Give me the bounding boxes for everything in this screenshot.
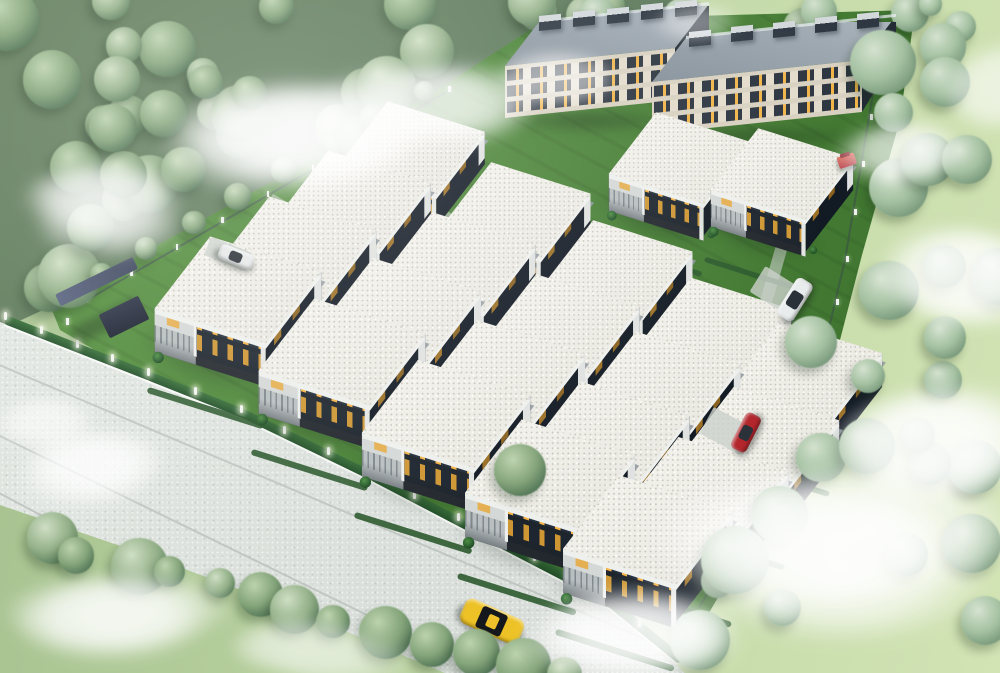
cloud — [210, 613, 430, 673]
cloud — [640, 1, 760, 49]
layer-sky — [0, 0, 1000, 673]
cloud — [0, 160, 240, 270]
cloud-puff — [536, 583, 744, 664]
cloud-puff — [18, 162, 174, 234]
cloud — [485, 35, 665, 115]
cloud — [490, 586, 810, 673]
cloud-puff — [660, 9, 738, 40]
cloud — [922, 28, 1000, 148]
cloud — [0, 390, 110, 460]
cloud-puff — [12, 588, 207, 663]
cloud — [812, 367, 1000, 543]
cloud — [830, 190, 1000, 346]
cloud-puff — [3, 396, 94, 442]
cloud-puff — [494, 56, 611, 108]
aerial-estate-render — [0, 0, 1000, 673]
cloud-puff — [944, 52, 1000, 130]
